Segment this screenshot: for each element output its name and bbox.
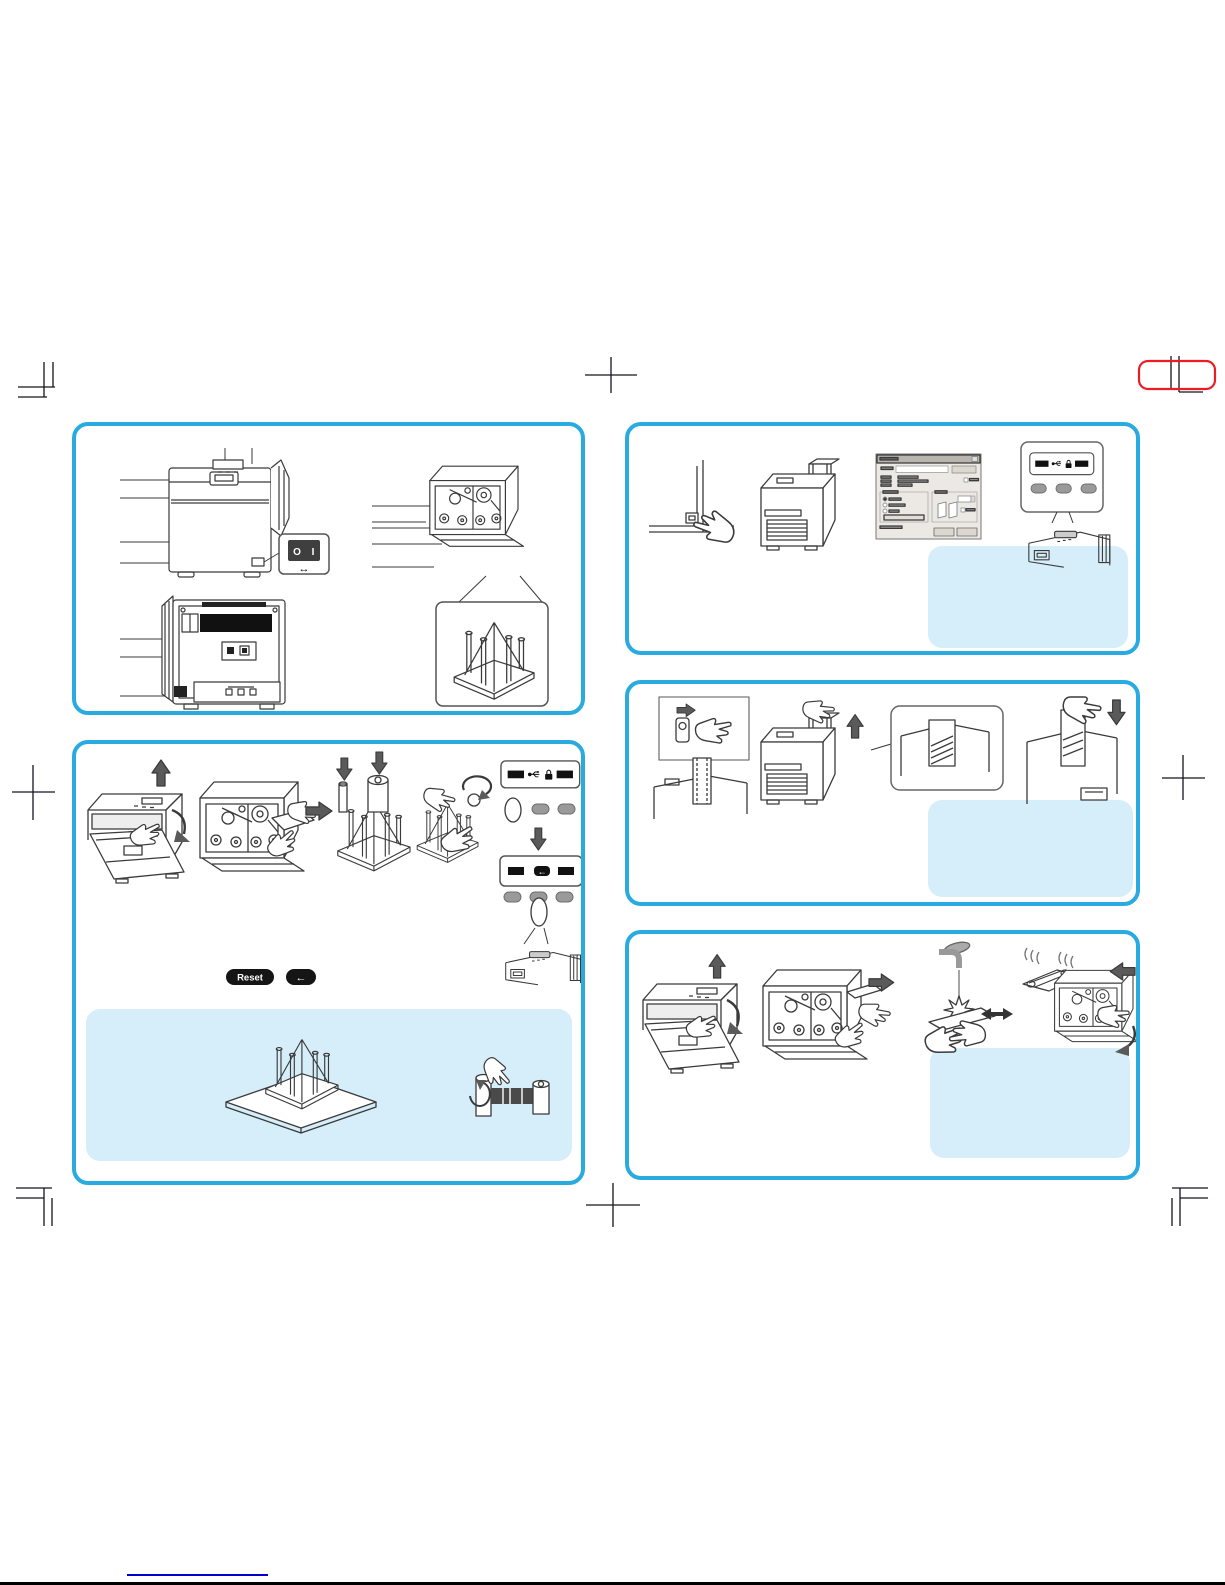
inset-card-stack: [891, 706, 1003, 790]
panel-button: [556, 892, 573, 902]
panel-button: [1081, 484, 1096, 493]
printer-top-edge: [1029, 531, 1110, 567]
power-inlet: [174, 686, 187, 697]
panel-printing-setup: [625, 422, 1140, 655]
front-view-illustration: [120, 448, 289, 577]
svg-text:←: ←: [538, 867, 547, 877]
manual-page: O I ↔: [0, 0, 1225, 1585]
printer-top-edge: [506, 952, 581, 985]
down-arrow-icon: [1108, 700, 1125, 725]
print-dialog-window: [876, 454, 981, 539]
step-press-cards-down: [1027, 691, 1125, 804]
panel-parts-overview: O I ↔: [72, 422, 585, 715]
panel-display: [501, 761, 580, 788]
step-open-front-door: [88, 760, 190, 883]
control-panel-sequence: ←: [500, 761, 581, 985]
svg-text:←: ←: [296, 972, 307, 984]
crop-mark-left-center: [12, 765, 55, 820]
top-display: [213, 460, 243, 469]
panel-button: [532, 804, 549, 814]
power-off-glyph: O: [293, 547, 301, 558]
finger-icon: [531, 898, 547, 926]
step-wash-roller: [923, 940, 1013, 1057]
panel-card-loading: [625, 680, 1140, 906]
printer-hopper-corner: [654, 758, 747, 819]
rear-vent: [200, 614, 272, 632]
power-switch-detail: O I ↔: [264, 534, 329, 575]
color-patch-red: [1139, 361, 1215, 389]
curved-arrow-icon: [1115, 1044, 1129, 1056]
cassette-detail-box: [436, 602, 548, 706]
crop-mark-top-center: [585, 357, 637, 393]
crop-mark-bottom-left: [16, 1188, 52, 1226]
step-remove-cleaning-unit: [763, 970, 894, 1059]
power-on-glyph: I: [312, 547, 315, 558]
rear-view-illustration: [120, 596, 285, 709]
finger-icon: [505, 798, 521, 822]
note-cassette-on-sheet: [226, 1040, 376, 1134]
usb-port-icon: [227, 647, 234, 654]
hand-icon: [691, 505, 740, 549]
up-arrow-icon: [152, 760, 170, 786]
down-arrow-icon: [372, 752, 387, 774]
interior-view-illustration: [372, 466, 542, 602]
steam-icon: [1025, 948, 1073, 968]
panel-button: [504, 892, 521, 902]
step-power-on: [649, 460, 740, 549]
switch-direction-arrow: ↔: [299, 563, 310, 575]
panel-ribbon-loading: ← Reset ←: [72, 740, 585, 1185]
crop-mark-bottom-center: [586, 1183, 640, 1227]
reset-instruction-line: Reset ←: [226, 969, 316, 985]
panel-button: [558, 804, 575, 814]
crop-mark-right-center: [1162, 755, 1205, 800]
panel-display-enter: ←: [500, 856, 581, 886]
printer-open-interior: [430, 466, 524, 546]
panel-display: [1030, 453, 1094, 475]
panel-button: [1031, 484, 1046, 493]
svg-text:Reset: Reset: [237, 973, 264, 984]
up-arrow-icon: [709, 955, 725, 978]
step-load-ribbon-rolls: [337, 752, 410, 871]
step-lift-hopper: [761, 697, 891, 804]
up-arrow-icon: [847, 715, 863, 738]
crop-mark-top-left: [18, 362, 55, 397]
note-wind-ribbon-hand: [470, 1054, 549, 1116]
step-reinsert-unit: [1055, 963, 1136, 1056]
crop-mark-bottom-right: [1172, 1188, 1208, 1226]
panel-cleaning: [625, 930, 1140, 1180]
step-open-door: [643, 955, 743, 1073]
step-panel-callout: [1021, 442, 1110, 567]
step-print-dialog: [876, 454, 981, 539]
down-arrow-icon: [531, 828, 546, 850]
panel-button: [1056, 484, 1071, 493]
down-arrow-icon: [337, 758, 352, 780]
crop-mark-top-right: [1139, 356, 1215, 392]
footer-link-underline: [127, 1574, 268, 1576]
step-printer-ready: [761, 459, 839, 550]
step-wind-ribbon: [417, 776, 491, 862]
step-pull-out-cassette: [200, 782, 332, 871]
